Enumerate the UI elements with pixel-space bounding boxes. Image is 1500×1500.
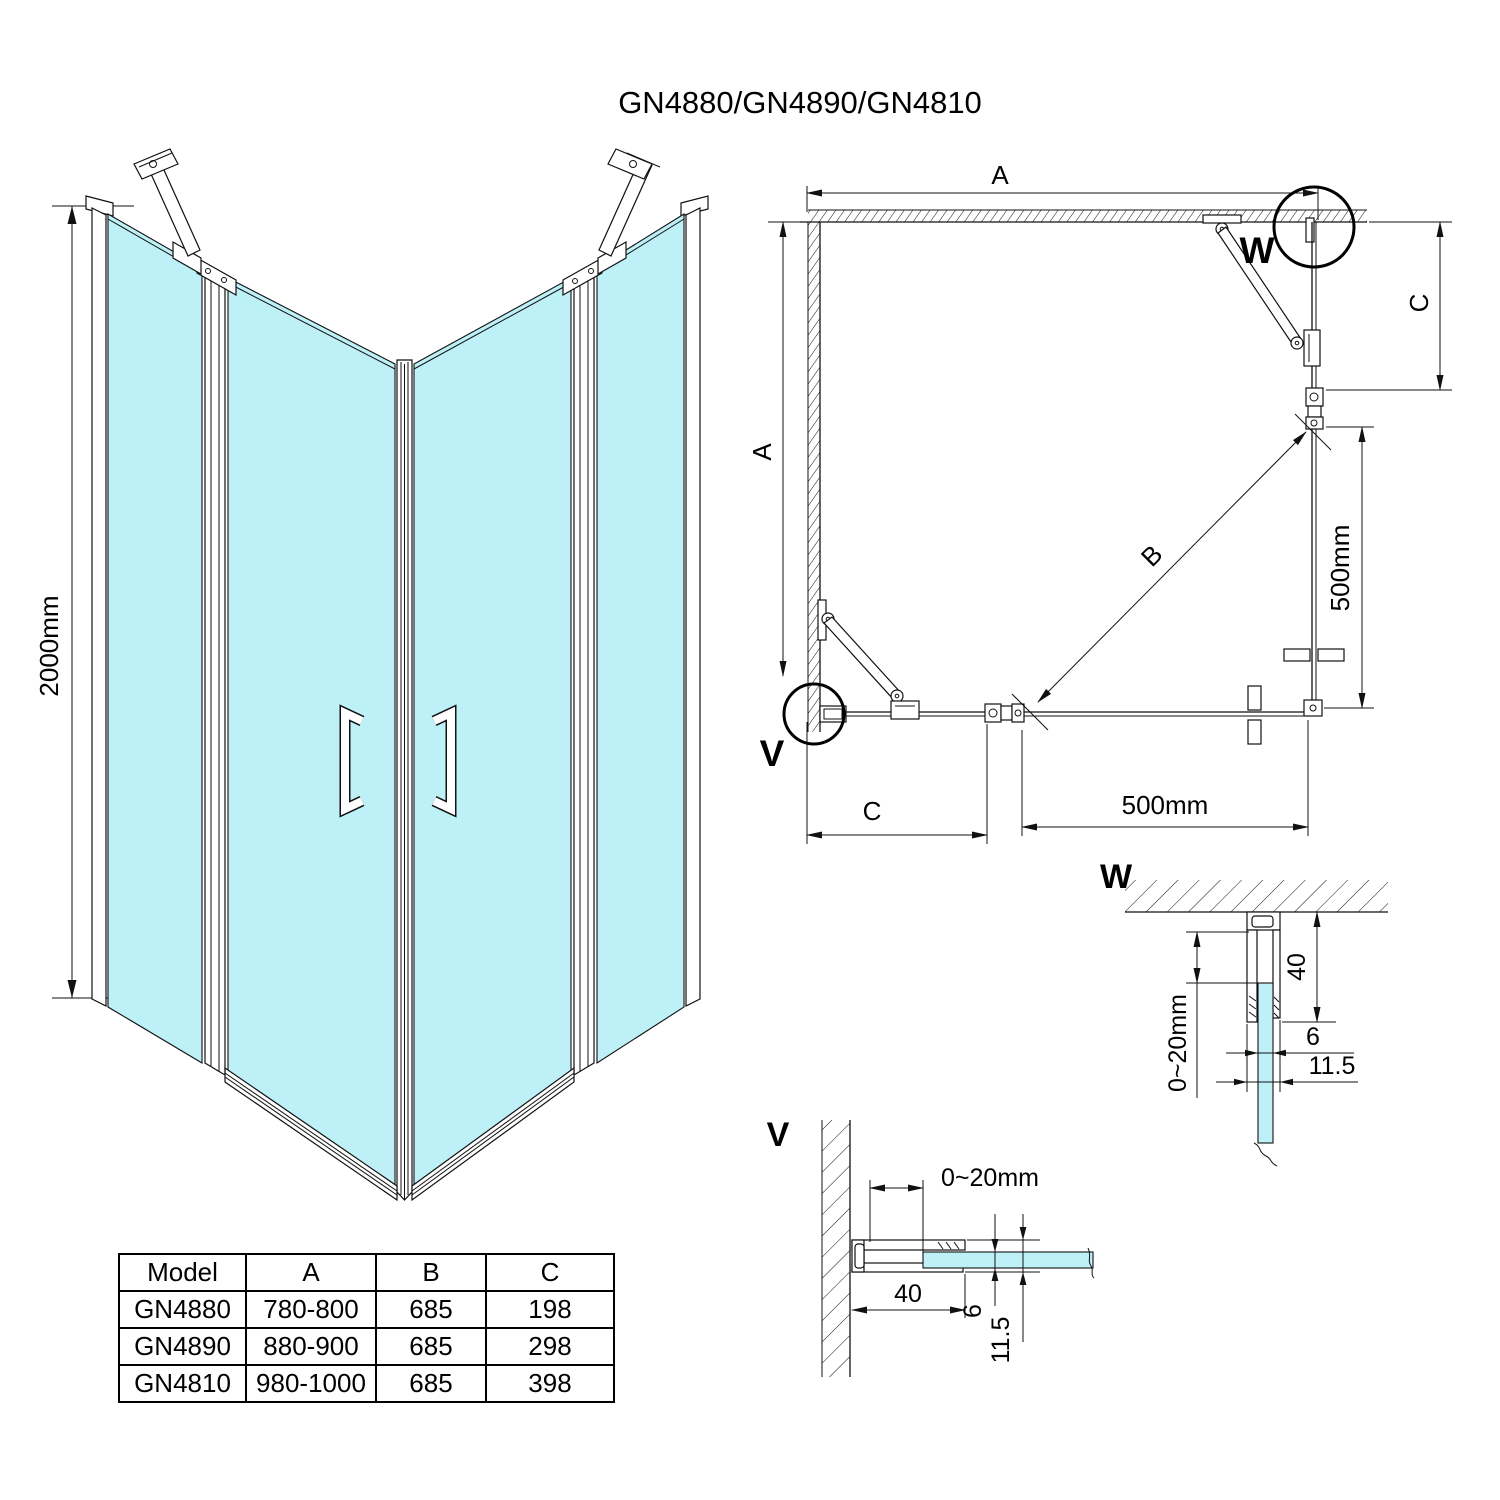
page-title: GN4880/GN4890/GN4810 — [618, 85, 982, 120]
detail-w-dim-40: 40 — [1282, 912, 1336, 1022]
detail-v-dim-adjust-label: 0~20mm — [941, 1164, 1039, 1192]
spec-table-row: GN4890 880-900 685 298 — [119, 1328, 614, 1365]
plan-right-panel — [1284, 218, 1344, 702]
spec-cell-c: 298 — [486, 1328, 614, 1365]
detail-w-dim-profile-label: 11.5 — [1309, 1052, 1356, 1080]
spec-cell-a: 780-800 — [246, 1291, 376, 1328]
plan-dim-c-bottom: C — [807, 722, 987, 844]
right-door-glass-panel — [414, 278, 571, 1186]
left-hinge-profile — [205, 264, 225, 1075]
detail-callout-w-label: W — [1240, 230, 1275, 271]
detail-w-dim-adjust: 0~20mm — [1164, 932, 1260, 1098]
spec-cell-model: GN4810 — [119, 1365, 246, 1402]
technical-drawing-page: GN4880/GN4890/GN4810 2000mm — [0, 0, 1500, 1500]
spec-cell-c: 398 — [486, 1365, 614, 1402]
detail-v-dim-profile-label: 11.5 — [987, 1317, 1015, 1364]
spec-cell-a: 880-900 — [246, 1328, 376, 1365]
plan-dim-b: B — [1012, 414, 1331, 730]
plan-right-handle — [1284, 649, 1344, 661]
spec-cell-a: 980-1000 — [246, 1365, 376, 1402]
plan-left-support-arm — [818, 600, 919, 719]
iso-height-label: 2000mm — [34, 595, 64, 696]
plan-bottom-handle — [1248, 686, 1261, 744]
right-hinge-profile — [574, 264, 594, 1075]
spec-table-header-a: A — [246, 1254, 376, 1291]
left-fixed-glass-panel — [108, 214, 202, 1063]
detail-v-title: V — [767, 1116, 790, 1154]
plan-dim-b-label: B — [1135, 539, 1168, 572]
plan-corner-connector — [1304, 700, 1322, 716]
detail-view-w: W 40 — [1100, 858, 1388, 1166]
spec-cell-c: 198 — [486, 1291, 614, 1328]
detail-w-dim-40-label: 40 — [1283, 953, 1311, 981]
plan-dim-500-right-label: 500mm — [1325, 525, 1355, 612]
spec-table-header-b: B — [376, 1254, 486, 1291]
detail-w-dim-profile: 11.5 — [1216, 1020, 1358, 1092]
detail-w-dim-adjust-label: 0~20mm — [1164, 994, 1192, 1092]
detail-w-dim-glass-label: 6 — [1306, 1023, 1320, 1051]
iso-view: 2000mm — [34, 149, 708, 1200]
plan-right-hinge — [1306, 388, 1323, 429]
spec-table: Model A B C GN4880 780-800 685 198 GN489… — [118, 1253, 615, 1403]
plan-dim-500-bottom-label: 500mm — [1122, 790, 1209, 820]
spec-cell-b: 685 — [376, 1291, 486, 1328]
detail-v-dim-40-label: 40 — [894, 1280, 922, 1308]
plan-dim-500-right: 500mm — [1324, 427, 1374, 708]
plan-left-wall — [808, 222, 820, 732]
plan-top-wall — [800, 210, 1367, 222]
right-wall-profile — [686, 208, 700, 1006]
spec-table-row: GN4880 780-800 685 198 — [119, 1291, 614, 1328]
spec-table-row: GN4810 980-1000 685 398 — [119, 1365, 614, 1402]
plan-dim-a-left: A — [747, 222, 806, 676]
detail-v-wall — [822, 1120, 850, 1377]
detail-view-v: V 0~20mm — [767, 1116, 1094, 1377]
detail-w-wall — [1125, 880, 1388, 912]
left-door-glass-panel — [228, 278, 395, 1186]
plan-dim-c-right: C — [1326, 222, 1452, 390]
plan-dim-500-bottom: 500mm — [1022, 720, 1308, 836]
plan-dim-a-left-label: A — [747, 443, 777, 461]
left-wall-profile — [92, 208, 106, 1006]
spec-table-header-c: C — [486, 1254, 614, 1291]
spec-cell-b: 685 — [376, 1365, 486, 1402]
detail-v-dim-40: 40 — [852, 1274, 965, 1318]
spec-cell-b: 685 — [376, 1328, 486, 1365]
spec-table-header-row: Model A B C — [119, 1254, 614, 1291]
spec-cell-model: GN4880 — [119, 1291, 246, 1328]
spec-table-header-model: Model — [119, 1254, 246, 1291]
detail-v-glass — [923, 1248, 1094, 1278]
plan-bottom-hinge — [985, 704, 1024, 722]
plan-dim-c-bottom-label: C — [863, 796, 882, 826]
spec-cell-model: GN4890 — [119, 1328, 246, 1365]
detail-v-dim-glass-label: 6 — [959, 1304, 987, 1318]
plan-view: A A C 500mm C — [747, 160, 1452, 844]
right-fixed-glass-panel — [597, 214, 684, 1063]
plan-dim-c-right-label: C — [1404, 294, 1434, 313]
corner-post — [397, 360, 412, 1200]
detail-callout-v-label: V — [760, 733, 785, 774]
plan-dim-a-top-label: A — [991, 160, 1009, 190]
detail-v-dim-profile: 11.5 — [965, 1214, 1040, 1363]
